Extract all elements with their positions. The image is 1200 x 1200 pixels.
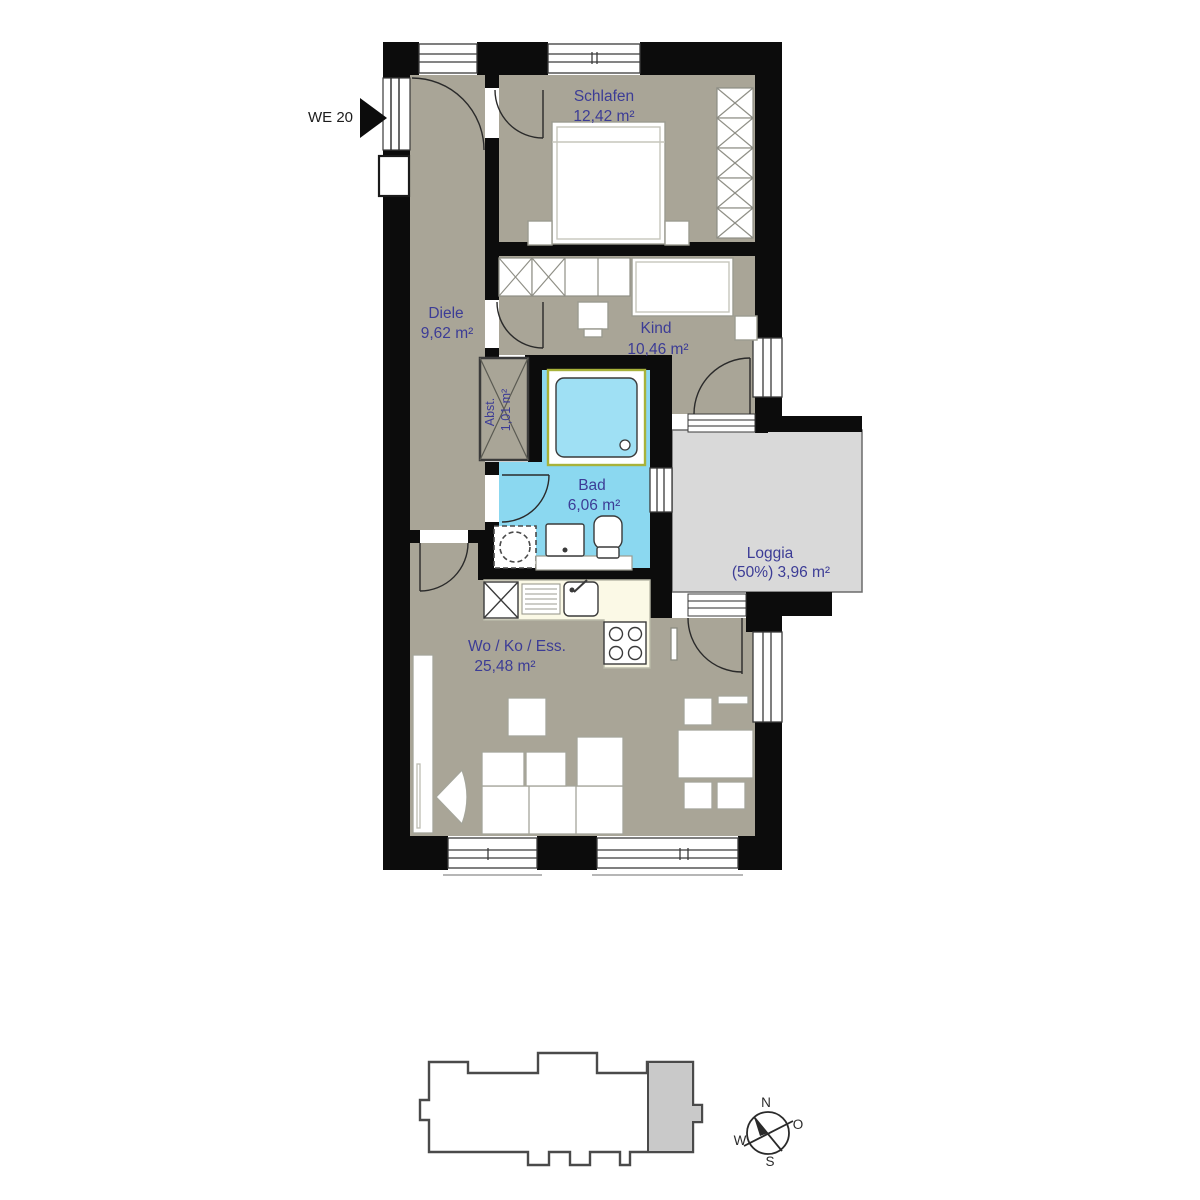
compass-west: W [734,1133,747,1148]
wardrobe-schlafen [717,88,753,238]
window-top-1 [419,44,477,73]
wohnen-area: 25,48 m² [474,658,535,675]
stove [604,622,646,664]
sofa-back-cushion [526,752,566,786]
chair-kind-seat [584,329,602,337]
window-wohnen-right [753,632,782,722]
sofa-back-cushion [482,752,524,786]
unit-label: WE 20 [308,109,353,126]
diele-area: 9,62 m² [421,325,474,342]
entrance-shaft-box [379,156,409,196]
bad-name: Bad [578,477,606,494]
keyplan-unit-highlight [648,1062,702,1152]
floorplan-canvas: Schlafen 12,42 m² Diele 9,62 m² Kind 10,… [0,0,1200,1200]
bad-area: 6,06 m² [568,497,621,514]
loggia-area: (50%) 3,96 m² [732,564,830,581]
compass-rose: N O S W [734,1095,804,1169]
abst-name: Abst. [483,398,497,427]
kind-name: Kind [640,320,671,337]
kind-area: 10,46 m² [627,341,688,358]
schlafen-name: Schlafen [574,88,634,105]
bathtub [548,370,645,465]
abst-area: 1,01 m² [499,389,513,431]
loggia-bottom-wall [782,592,832,616]
window-top-2 [548,44,640,73]
dining-chair [684,782,712,809]
wardrobe-kind [499,258,630,296]
nightstand-kind [735,316,757,340]
compass-north: N [761,1095,771,1110]
floorplan-page: Schlafen 12,42 m² Diele 9,62 m² Kind 10,… [0,0,1200,1200]
wall-shelf [718,696,748,704]
sideboard [413,655,433,833]
keyplan [420,1053,702,1165]
schlafen-area: 12,42 m² [573,108,634,125]
chair-kind [578,302,608,329]
toilet [594,516,622,558]
diele-name: Diele [428,305,463,322]
kitchen-tall-cabinet [484,582,518,618]
window-kind-right [753,338,782,397]
sink-bad [546,524,584,556]
dining-chair [684,698,712,725]
sofa-chaise [577,737,623,786]
bed-kind [632,258,733,316]
dining-table [678,730,753,778]
entrance-marker: WE 20 [308,98,387,138]
compass-needle-tip [754,1117,768,1136]
window-bottom-2 [592,838,743,875]
window-bottom-1 [443,838,542,875]
loggia-top-wall [768,416,862,432]
kitchen-drainer [522,584,560,614]
nightstand-left [528,221,552,245]
compass-east: O [793,1117,804,1132]
wohnen-name: Wo / Ko / Ess. [468,638,566,655]
radiator [671,628,677,660]
bed-double [552,122,665,244]
compass-south: S [765,1154,774,1169]
kitchen-sink [564,580,598,616]
loggia-name: Loggia [747,545,794,562]
sofa-seats [482,786,623,834]
window-bad-loggia [650,468,672,512]
washing-machine [494,526,536,568]
dining-chair [717,782,745,809]
nightstand-right [665,221,689,245]
coffee-table [508,698,546,736]
